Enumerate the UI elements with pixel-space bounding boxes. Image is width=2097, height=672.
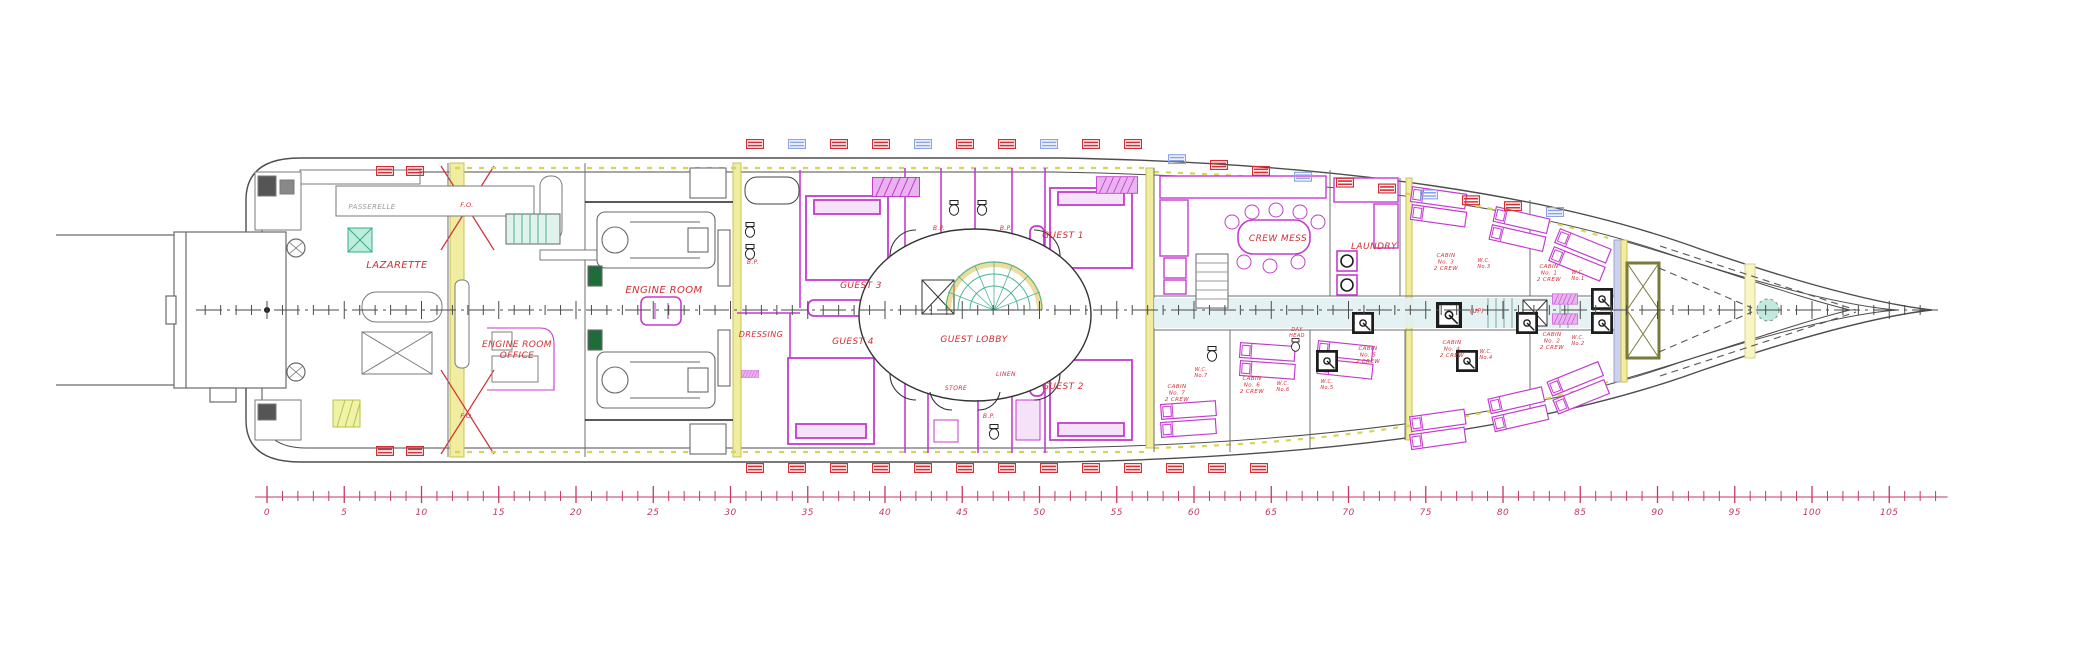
- ruler-label: 80: [1497, 508, 1509, 518]
- ruler-label: 10: [415, 508, 427, 518]
- room-label: 2 CREW: [1240, 389, 1264, 395]
- room-label: B.P.: [1000, 225, 1012, 232]
- room-label: 2 CREW: [1165, 397, 1189, 403]
- deck-fitting: [957, 464, 974, 473]
- room-label: STORE: [945, 385, 967, 392]
- deck-fitting: [1209, 464, 1226, 473]
- deck-fitting: [747, 464, 764, 473]
- room-label: LAZARETTE: [366, 260, 428, 271]
- ruler-label: 30: [724, 508, 736, 518]
- room-label: No. 6: [1244, 383, 1261, 389]
- room-label: GUEST LOBBY: [940, 335, 1008, 345]
- ruler-label: 35: [802, 508, 814, 518]
- room-label: GUEST 1: [1042, 231, 1084, 241]
- room-label: GUEST 3: [840, 281, 882, 291]
- room-label: HEAD: [1289, 333, 1305, 339]
- ruler-label: 75: [1420, 508, 1432, 518]
- room-label: LAUNDRY: [1351, 242, 1398, 252]
- deck-fitting: [915, 140, 932, 149]
- ruler-label: 5: [341, 508, 347, 518]
- ruler-label: 25: [647, 508, 659, 518]
- room-label: No. 7: [1169, 391, 1186, 397]
- swim-platform: [56, 232, 305, 402]
- room-label: No.3: [1477, 264, 1490, 270]
- room-label: CABIN: [1242, 376, 1261, 382]
- deck-plan-page: LAZARETTEPASSERELLEENGINE ROOMOFFICEENGI…: [0, 0, 2097, 672]
- room-label: F.O.: [460, 412, 474, 420]
- deck-fitting: [999, 140, 1016, 149]
- room-label: No. 3: [1438, 260, 1455, 266]
- scale-ruler: 0510152025303540455055606570758085909510…: [255, 486, 1948, 518]
- deck-fitting: [1125, 464, 1142, 473]
- room-label: 2 CREW: [1537, 277, 1561, 283]
- ruler-label: 15: [493, 508, 505, 518]
- room-label: No.1: [1571, 276, 1584, 282]
- ruler-label: 40: [879, 508, 891, 518]
- room-label: (UP): [1470, 308, 1484, 315]
- room-label: LINEN: [996, 371, 1016, 378]
- deck-fitting: [831, 140, 848, 149]
- room-label: No.2: [1571, 341, 1584, 347]
- deck-fitting: [1167, 464, 1184, 473]
- ruler-label: 45: [956, 508, 968, 518]
- ruler-label: 85: [1574, 508, 1586, 518]
- room-label: B.P.: [747, 259, 759, 266]
- deck-fitting: [873, 464, 890, 473]
- deck-fitting: [1125, 140, 1142, 149]
- room-label: F.O.: [460, 201, 474, 209]
- deck-fitting: [957, 140, 974, 149]
- ruler-label: 90: [1651, 508, 1663, 518]
- room-label: PASSERELLE: [348, 203, 395, 211]
- room-label: No.5: [1320, 385, 1333, 391]
- deck-fitting: [873, 140, 890, 149]
- deck-fitting: [789, 140, 806, 149]
- room-label: 2 CREW: [1434, 266, 1458, 272]
- ruler-label: 65: [1265, 508, 1277, 518]
- ruler-label: 70: [1342, 508, 1354, 518]
- room-label: ENGINE ROOM: [482, 340, 552, 350]
- deck-fitting: [1251, 464, 1268, 473]
- room-label: GUEST 4: [832, 337, 874, 347]
- room-label: GUEST 2: [1042, 382, 1084, 392]
- deck-fitting: [1083, 464, 1100, 473]
- room-label: CABIN: [1442, 340, 1461, 346]
- room-label: No.7: [1194, 373, 1208, 379]
- room-label: 2 CREW: [1540, 345, 1564, 351]
- ruler-label: 105: [1880, 508, 1898, 518]
- room-label: No. 5: [1360, 353, 1377, 359]
- room-label: CABIN: [1436, 253, 1455, 259]
- room-label: OFFICE: [500, 351, 534, 361]
- room-label: B.P.: [983, 413, 995, 420]
- deck-fitting: [999, 464, 1016, 473]
- deck-plan-drawing: LAZARETTEPASSERELLEENGINE ROOMOFFICEENGI…: [0, 0, 2097, 672]
- ruler-label: 0: [264, 508, 270, 518]
- room-label: CABIN: [1542, 332, 1561, 338]
- room-label: No. 1: [1541, 271, 1557, 277]
- room-label: No. 2: [1544, 339, 1561, 345]
- room-label: CABIN: [1539, 264, 1558, 270]
- room-label: No.6: [1276, 387, 1289, 393]
- ruler-label: 20: [570, 508, 582, 518]
- deck-fitting: [747, 140, 764, 149]
- deck-fitting: [831, 464, 848, 473]
- ruler-label: 95: [1729, 508, 1741, 518]
- room-label: CREW MESS: [1249, 234, 1307, 244]
- deck-fitting: [1041, 464, 1058, 473]
- ruler-label: 100: [1803, 508, 1821, 518]
- room-label: 2 CREW: [1356, 359, 1380, 365]
- deck-fitting: [915, 464, 932, 473]
- ruler-label: 55: [1111, 508, 1123, 518]
- room-label: 2 CREW: [1440, 353, 1464, 359]
- deck-fitting: [1041, 140, 1058, 149]
- room-label: B.P.: [933, 225, 945, 232]
- ruler-label: 50: [1033, 508, 1045, 518]
- deck-fitting: [789, 464, 806, 473]
- room-label: No.4: [1479, 355, 1492, 361]
- ruler-label: 60: [1188, 508, 1200, 518]
- room-label: DRESSING: [739, 330, 783, 339]
- room-label: CABIN: [1358, 346, 1377, 352]
- room-label: No. 4: [1444, 347, 1461, 353]
- room-label: ENGINE ROOM: [625, 285, 702, 296]
- room-label: CABIN: [1167, 384, 1186, 390]
- deck-fitting: [1083, 140, 1100, 149]
